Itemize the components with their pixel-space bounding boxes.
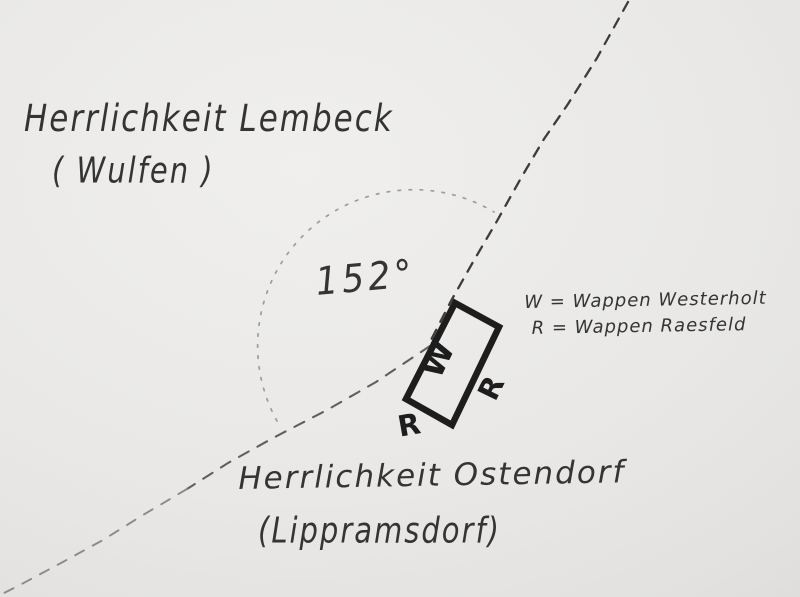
territory-label-lembeck: Herrlichkeit Lembeck <box>24 98 394 140</box>
territory-label-lippramsdorf: (Lippramsdorf) <box>258 512 501 551</box>
territory-label-ostendorf: Herrlichkeit Ostendorf <box>238 455 626 496</box>
boundary-line-lower-faint <box>2 489 187 594</box>
stone-label-r-bottom: R <box>395 406 423 443</box>
territory-label-wulfen: ( Wulfen ) <box>52 152 215 191</box>
legend: W = Wappen Westerholt R = Wappen Raesfel… <box>524 286 767 342</box>
paper-sketch: W R R Herrlichkeit Lembeck ( Wulfen ) 15… <box>0 0 800 597</box>
legend-line-raesfeld: R = Wappen Raesfeld <box>524 312 767 342</box>
angle-value-label: 152° <box>314 253 418 304</box>
